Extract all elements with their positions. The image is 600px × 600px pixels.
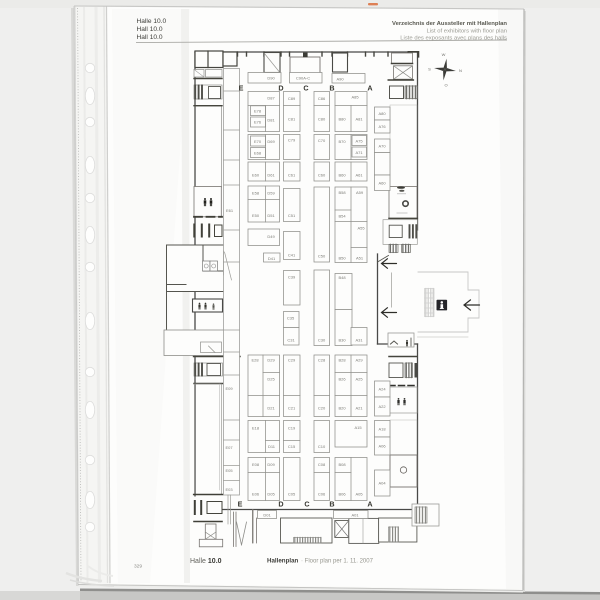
svg-text:B08: B08 — [338, 462, 346, 467]
svg-text:D25: D25 — [267, 377, 275, 382]
svg-text:C35: C35 — [287, 316, 295, 321]
svg-text:C08: C08 — [318, 462, 326, 467]
svg-text:D90: D90 — [267, 76, 275, 81]
svg-text:A04: A04 — [378, 481, 386, 486]
svg-text:C39: C39 — [288, 275, 296, 280]
svg-text:C: C — [304, 500, 309, 509]
svg-text:D05: D05 — [267, 492, 275, 497]
svg-text:E58: E58 — [252, 191, 260, 196]
svg-text:A05: A05 — [355, 492, 363, 497]
svg-text:C70: C70 — [318, 138, 326, 143]
svg-text:Verzeichnis der Aussteller mit: Verzeichnis der Aussteller mit Hallenpla… — [392, 21, 507, 27]
svg-text:D: D — [278, 84, 283, 93]
svg-text:A01: A01 — [351, 513, 359, 518]
svg-text:C79: C79 — [288, 138, 296, 143]
svg-text:D59: D59 — [267, 191, 275, 196]
svg-text:E: E — [238, 500, 243, 509]
svg-text:C06: C06 — [318, 492, 326, 497]
svg-text:D41: D41 — [268, 256, 276, 261]
svg-text:C05: C05 — [288, 492, 296, 497]
svg-text:B30: B30 — [338, 338, 346, 343]
svg-text:D11: D11 — [268, 444, 276, 449]
svg-text:329: 329 — [134, 564, 142, 570]
svg-text:A15: A15 — [354, 425, 362, 430]
svg-text:A24: A24 — [378, 387, 386, 392]
svg-text:B54: B54 — [338, 214, 346, 219]
svg-text:A18: A18 — [378, 426, 386, 431]
svg-text:B20: B20 — [338, 406, 346, 411]
svg-text:D09: D09 — [267, 462, 275, 467]
svg-text:A51: A51 — [356, 256, 364, 261]
svg-text:C61: C61 — [288, 173, 296, 178]
svg-text:C28: C28 — [318, 358, 326, 363]
svg-text:D87: D87 — [267, 96, 275, 101]
svg-text:B50: B50 — [338, 256, 346, 261]
svg-text:C31: C31 — [287, 338, 295, 343]
svg-text:E60: E60 — [252, 173, 260, 178]
svg-text:A80: A80 — [378, 111, 386, 116]
svg-text:C29: C29 — [288, 358, 296, 363]
svg-text:A29: A29 — [355, 358, 363, 363]
svg-text:D01: D01 — [263, 513, 271, 518]
svg-text:D81: D81 — [267, 118, 275, 123]
svg-text:E08: E08 — [252, 462, 260, 467]
svg-text:C80: C80 — [318, 117, 326, 122]
svg-text:C50: C50 — [318, 254, 326, 259]
svg-text:B48: B48 — [338, 275, 346, 280]
svg-text:C20: C20 — [318, 406, 326, 411]
svg-text:C81: C81 — [288, 117, 296, 122]
svg-text:A22: A22 — [378, 404, 386, 409]
svg-text:Hallenplan: Hallenplan — [267, 558, 299, 565]
svg-text:C30: C30 — [318, 338, 326, 343]
svg-text:A25: A25 — [355, 377, 363, 382]
svg-text:A71: A71 — [355, 150, 363, 155]
svg-text:A90: A90 — [336, 77, 344, 82]
svg-text:E68: E68 — [254, 150, 262, 155]
svg-text:D21: D21 — [267, 406, 275, 411]
svg-text:S: S — [428, 67, 431, 72]
svg-text:E18: E18 — [252, 426, 260, 431]
svg-text:C21: C21 — [288, 406, 296, 411]
svg-text:Halle 10.0: Halle 10.0 — [190, 558, 222, 565]
svg-text:D61: D61 — [267, 173, 275, 178]
svg-text:E78: E78 — [254, 109, 262, 114]
svg-text:E28: E28 — [251, 358, 259, 363]
svg-text:B: B — [329, 500, 334, 509]
svg-text:A59: A59 — [356, 190, 364, 195]
svg-text:C86: C86 — [318, 96, 326, 101]
svg-text:A06: A06 — [378, 444, 386, 449]
svg-text:A81: A81 — [355, 117, 363, 122]
svg-text:C60: C60 — [318, 173, 326, 178]
svg-text:E09: E09 — [225, 386, 233, 391]
svg-text:A: A — [367, 500, 372, 509]
svg-text:Hall 10.0: Hall 10.0 — [137, 34, 163, 41]
svg-text:Liste des exposants avec plans: Liste des exposants avec plans des halls — [400, 36, 507, 42]
svg-text:E03: E03 — [225, 487, 233, 492]
svg-text:A31: A31 — [355, 338, 363, 343]
svg-text:E: E — [239, 84, 244, 93]
svg-text:C89: C89 — [288, 96, 296, 101]
svg-text:B70: B70 — [338, 139, 346, 144]
svg-text:B26: B26 — [338, 377, 346, 382]
svg-text:O: O — [444, 83, 447, 88]
svg-text:D29: D29 — [267, 358, 275, 363]
svg-text:B: B — [329, 84, 334, 93]
svg-text:E05: E05 — [225, 468, 233, 473]
svg-text:E06: E06 — [252, 492, 260, 497]
svg-text:W: W — [442, 52, 446, 57]
svg-text:A85: A85 — [351, 95, 359, 100]
svg-text:A55: A55 — [357, 226, 365, 231]
svg-text:C41: C41 — [288, 253, 296, 258]
svg-text:A60: A60 — [378, 180, 386, 185]
svg-text:E61: E61 — [226, 208, 234, 213]
svg-text:D51: D51 — [267, 213, 275, 218]
svg-text:E70: E70 — [254, 139, 262, 144]
svg-text:B58: B58 — [338, 190, 346, 195]
svg-text:E07: E07 — [225, 445, 233, 450]
svg-text:B60: B60 — [338, 173, 346, 178]
svg-text:B28: B28 — [338, 358, 346, 363]
svg-text:E76: E76 — [254, 120, 262, 125]
svg-text:A61: A61 — [355, 173, 363, 178]
svg-text:N: N — [459, 68, 462, 73]
svg-text:A21: A21 — [355, 406, 363, 411]
svg-text:B80: B80 — [338, 117, 346, 122]
svg-text:A75: A75 — [355, 138, 363, 143]
svg-text:Halle 10.0: Halle 10.0 — [137, 18, 167, 25]
svg-text:D49: D49 — [267, 234, 275, 239]
svg-text:C51: C51 — [288, 213, 296, 218]
svg-text:D69: D69 — [267, 139, 275, 144]
svg-text:· Floor plan per 1. 11. 2007: · Floor plan per 1. 11. 2007 — [301, 559, 374, 565]
svg-text:List of exhibitors with floor: List of exhibitors with floor plan — [426, 29, 507, 35]
svg-text:B06: B06 — [338, 492, 346, 497]
svg-text:A76: A76 — [378, 124, 386, 129]
svg-text:C19: C19 — [288, 426, 296, 431]
svg-text:Hall 10.0: Hall 10.0 — [137, 26, 163, 33]
svg-text:C15: C15 — [288, 444, 296, 449]
svg-text:D: D — [278, 500, 283, 509]
svg-text:A70: A70 — [378, 143, 386, 148]
svg-text:C90A-C: C90A-C — [296, 76, 310, 81]
svg-text:C10: C10 — [318, 444, 326, 449]
svg-text:C: C — [303, 84, 308, 93]
svg-text:A: A — [367, 84, 372, 93]
svg-text:E50: E50 — [252, 213, 260, 218]
